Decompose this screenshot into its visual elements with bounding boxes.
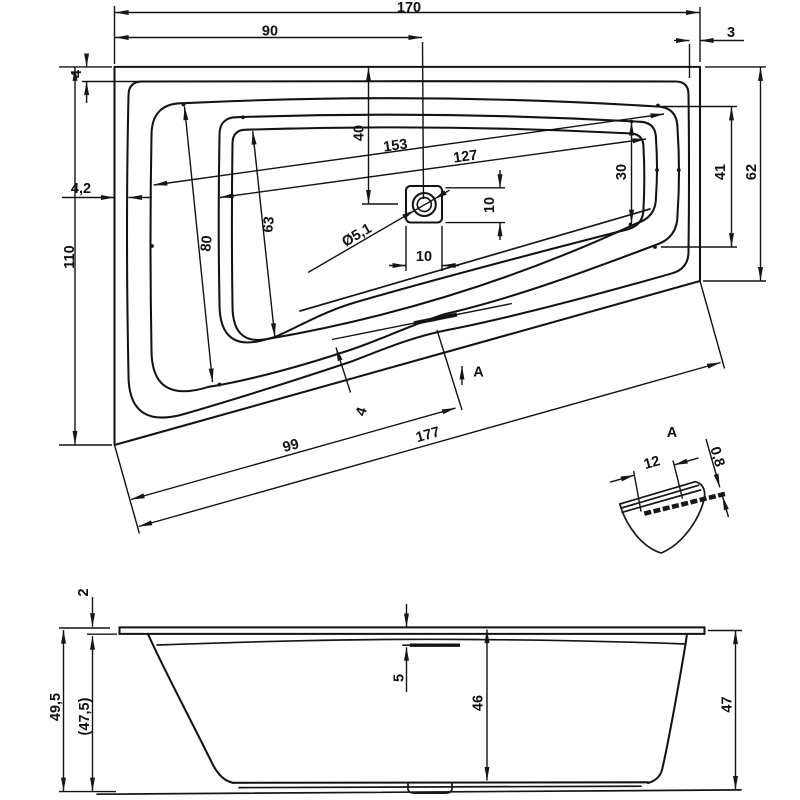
svg-text:A: A [473,365,484,381]
svg-text:4,2: 4,2 [71,181,91,197]
svg-text:41: 41 [713,164,729,180]
svg-text:2: 2 [76,588,92,596]
svg-text:(47,5): (47,5) [77,697,93,735]
svg-text:40: 40 [352,125,368,141]
svg-text:10: 10 [416,249,432,265]
svg-text:5: 5 [392,674,408,682]
svg-text:10: 10 [482,197,498,213]
svg-text:4: 4 [69,70,85,78]
svg-text:90: 90 [262,24,278,40]
svg-text:63: 63 [260,216,278,234]
svg-text:30: 30 [614,164,630,180]
svg-text:110: 110 [62,245,78,268]
svg-text:153: 153 [382,136,408,155]
svg-text:47: 47 [720,696,736,712]
svg-text:127: 127 [452,147,478,166]
svg-text:3: 3 [727,25,735,41]
svg-text:46: 46 [471,695,487,711]
svg-text:A: A [667,425,678,441]
svg-text:49,5: 49,5 [48,693,64,721]
svg-text:80: 80 [198,235,216,253]
svg-text:170: 170 [397,0,421,16]
svg-text:62: 62 [744,164,760,180]
